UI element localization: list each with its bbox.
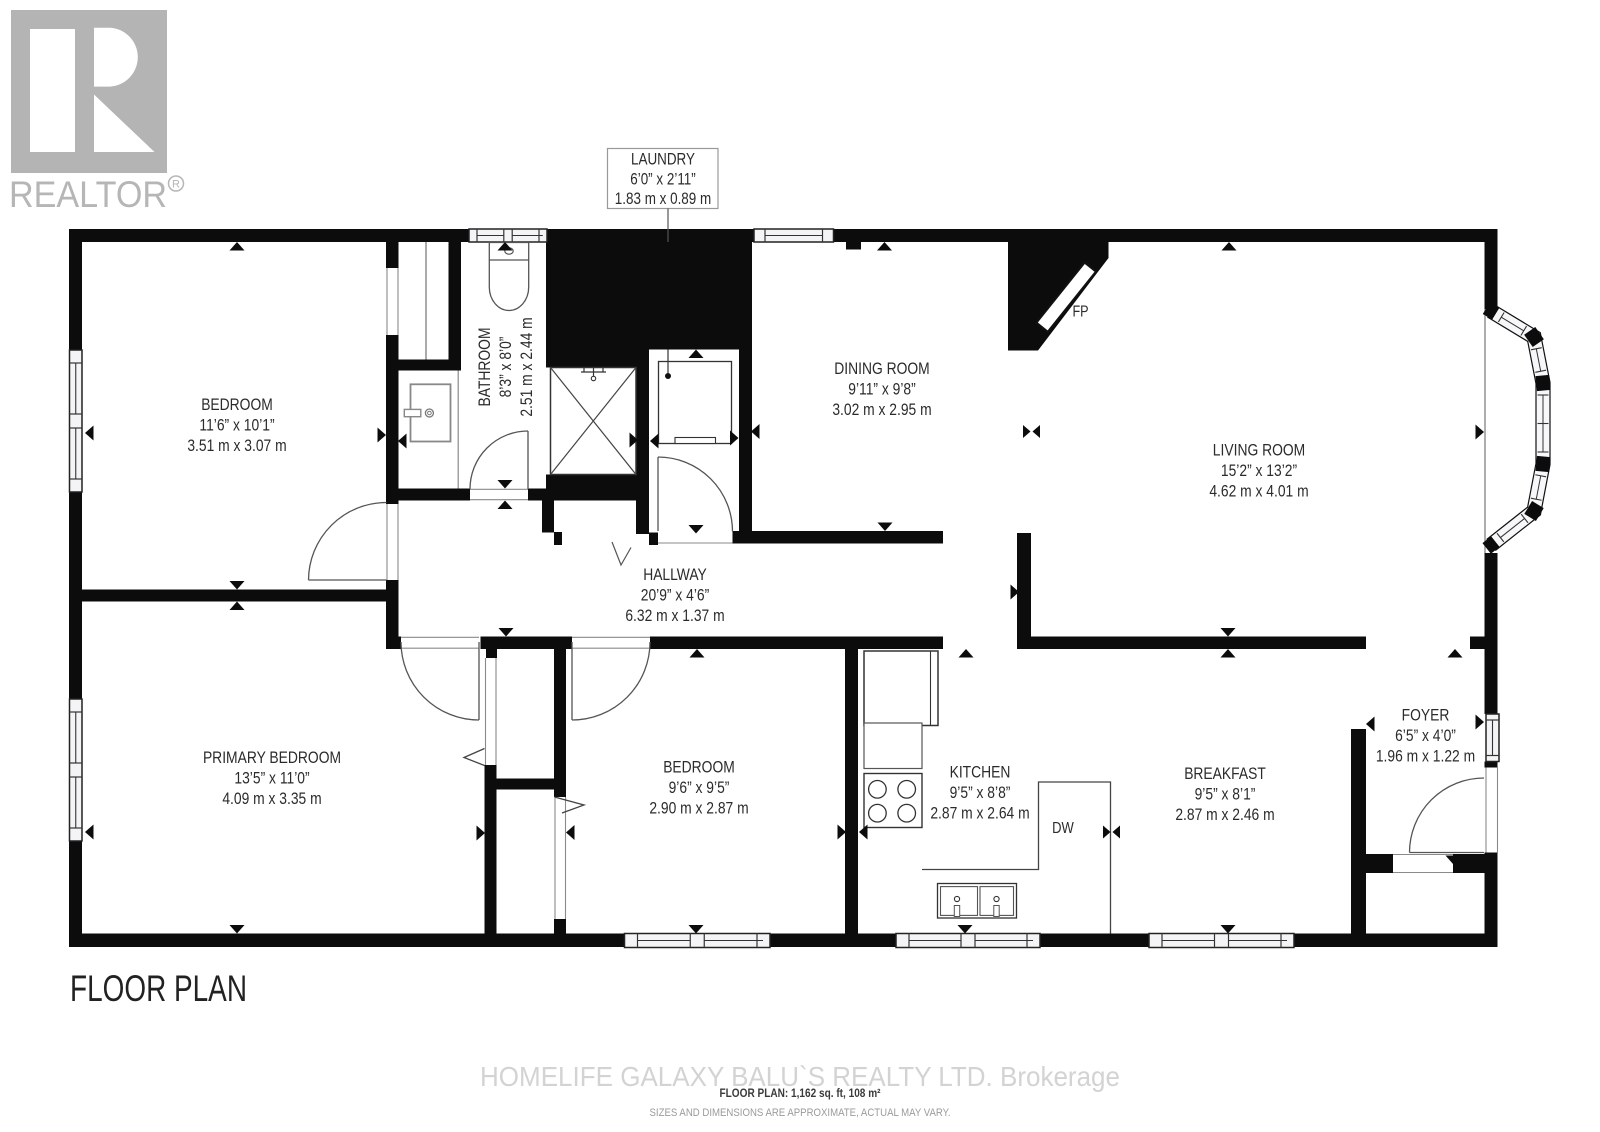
svg-text:DW: DW [1052, 820, 1074, 837]
svg-text:2.51 m x 2.44 m: 2.51 m x 2.44 m [517, 317, 536, 416]
svg-text:1.96 m x 1.22 m: 1.96 m x 1.22 m [1376, 746, 1475, 765]
svg-text:SIZES AND DIMENSIONS ARE APPRO: SIZES AND DIMENSIONS ARE APPROXIMATE, AC… [650, 1107, 951, 1119]
svg-text:FLOOR PLAN: 1,162 sq. ft, 108: FLOOR PLAN: 1,162 sq. ft, 108 m² [720, 1086, 881, 1100]
svg-text:8’3” x 8’0”: 8’3” x 8’0” [496, 336, 515, 397]
svg-text:BEDROOM: BEDROOM [201, 395, 273, 414]
svg-text:3.51 m x 3.07 m: 3.51 m x 3.07 m [187, 436, 286, 455]
svg-text:FP: FP [1072, 304, 1088, 321]
svg-text:FLOOR PLAN: FLOOR PLAN [70, 968, 247, 1009]
svg-text:HALLWAY: HALLWAY [643, 565, 707, 584]
svg-text:6’0” x 2’11”: 6’0” x 2’11” [630, 170, 696, 188]
svg-text:9’5” x 8’8”: 9’5” x 8’8” [950, 783, 1011, 802]
svg-text:BREAKFAST: BREAKFAST [1184, 764, 1266, 783]
svg-text:KITCHEN: KITCHEN [950, 763, 1011, 782]
svg-text:DINING ROOM: DINING ROOM [834, 359, 929, 378]
svg-text:11’6” x 10’1”: 11’6” x 10’1” [199, 415, 274, 434]
svg-text:6’5” x 4’0”: 6’5” x 4’0” [1395, 726, 1456, 745]
svg-text:6.32 m x 1.37 m: 6.32 m x 1.37 m [625, 606, 724, 625]
svg-text:REALTOR: REALTOR [9, 174, 167, 215]
svg-text:9’6” x 9’5”: 9’6” x 9’5” [669, 778, 730, 797]
svg-text:PRIMARY BEDROOM: PRIMARY BEDROOM [203, 748, 341, 767]
svg-text:2.87 m x 2.64 m: 2.87 m x 2.64 m [930, 803, 1029, 822]
svg-text:R: R [172, 179, 180, 191]
svg-text:13’5” x 11’0”: 13’5” x 11’0” [234, 768, 309, 787]
svg-text:9’11” x 9’8”: 9’11” x 9’8” [848, 379, 916, 398]
svg-text:1.83 m x 0.89 m: 1.83 m x 0.89 m [615, 190, 711, 208]
svg-text:FOYER: FOYER [1402, 706, 1450, 725]
svg-text:BATHROOM: BATHROOM [475, 328, 494, 407]
svg-text:9’5” x 8’1”: 9’5” x 8’1” [1195, 784, 1256, 803]
svg-text:LIVING ROOM: LIVING ROOM [1213, 441, 1305, 460]
svg-text:4.62 m x 4.01 m: 4.62 m x 4.01 m [1209, 481, 1308, 500]
svg-text:2.87 m x 2.46 m: 2.87 m x 2.46 m [1175, 805, 1274, 824]
svg-text:4.09 m x 3.35 m: 4.09 m x 3.35 m [222, 789, 321, 808]
svg-text:20’9” x 4’6”: 20’9” x 4’6” [641, 585, 710, 604]
svg-text:LAUNDRY: LAUNDRY [631, 151, 695, 169]
svg-text:3.02 m x 2.95 m: 3.02 m x 2.95 m [832, 400, 931, 419]
svg-text:2.90 m x 2.87 m: 2.90 m x 2.87 m [649, 798, 748, 817]
svg-text:15’2” x 13’2”: 15’2” x 13’2” [1221, 461, 1297, 480]
svg-text:BEDROOM: BEDROOM [663, 758, 735, 777]
